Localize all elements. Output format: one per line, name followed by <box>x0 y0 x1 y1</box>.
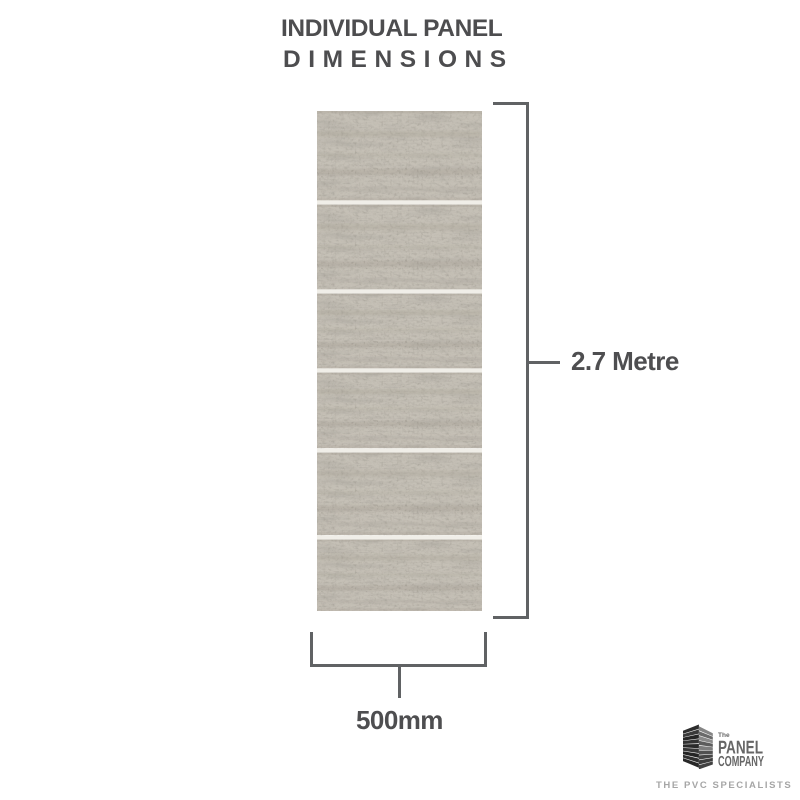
svg-text:COMPANY: COMPANY <box>718 754 764 768</box>
